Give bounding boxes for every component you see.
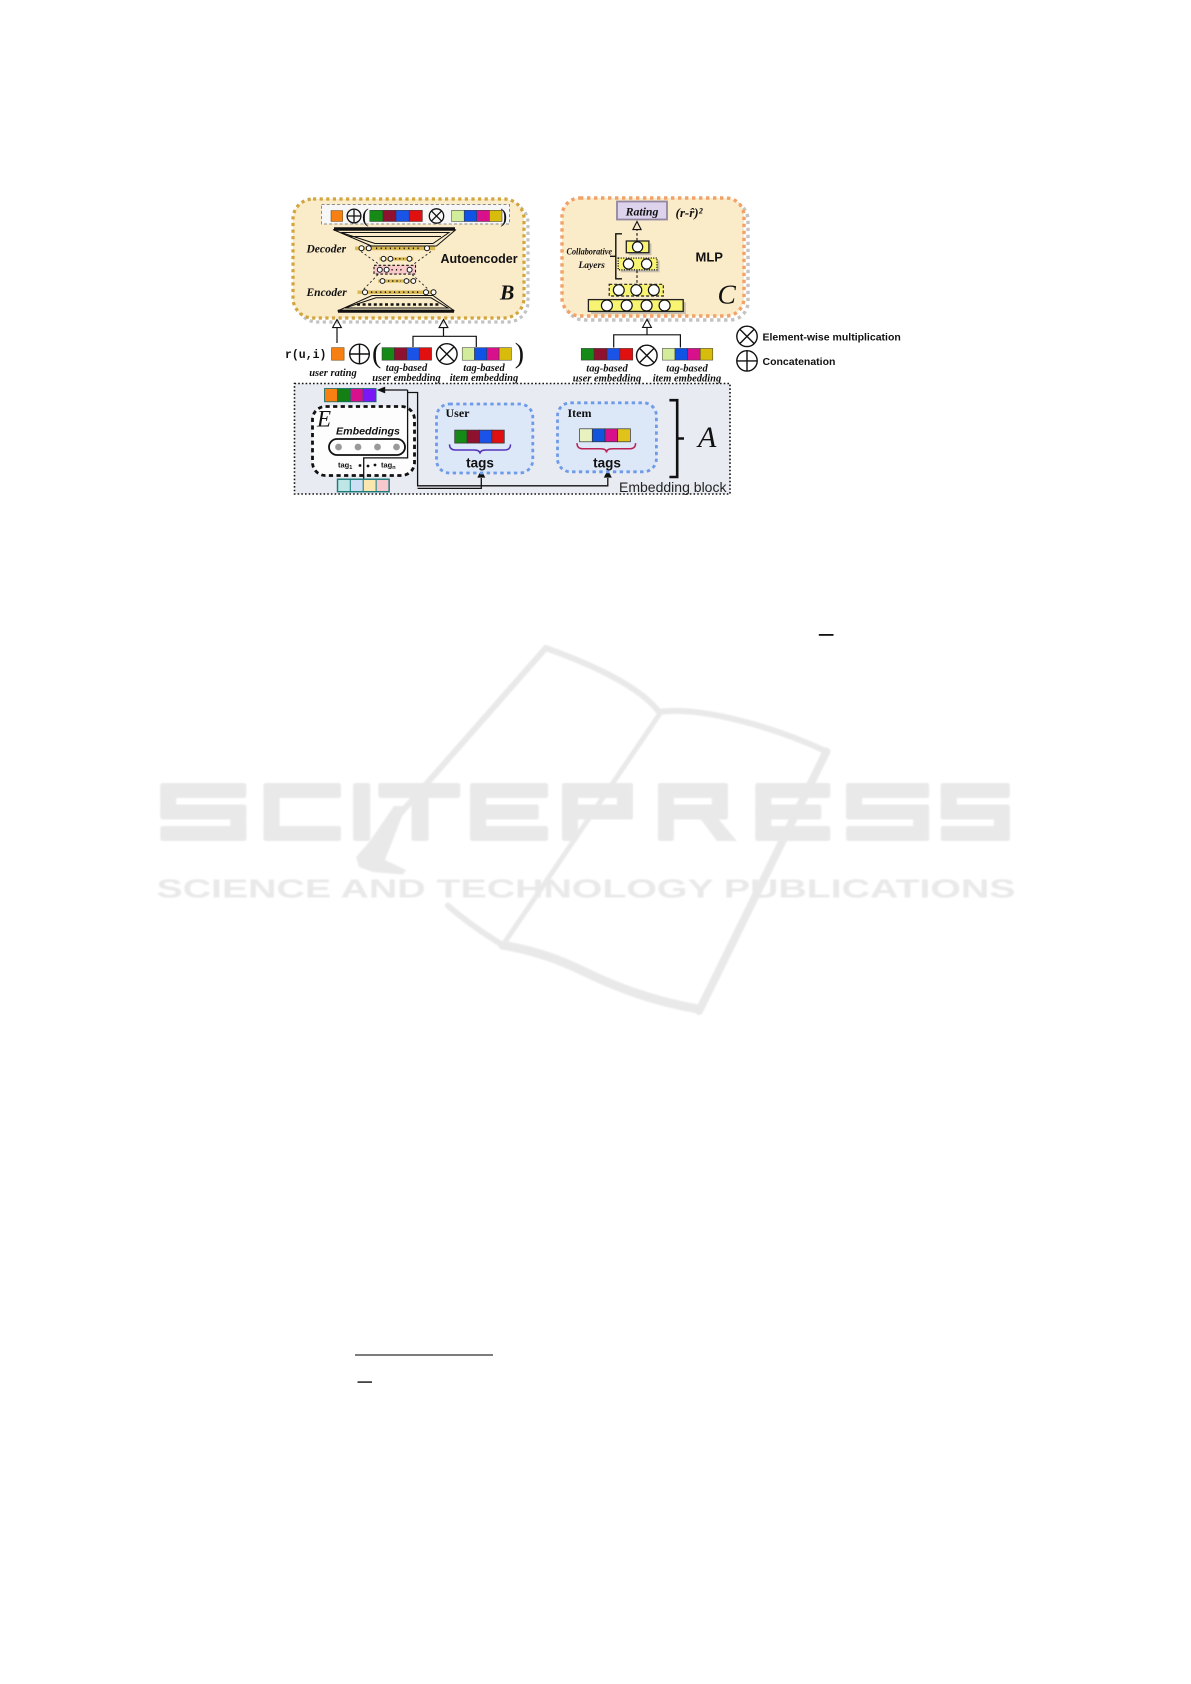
svg-text:Embedding block: Embedding block: [619, 480, 727, 495]
svg-text:C: C: [718, 279, 737, 310]
svg-text:A: A: [696, 421, 717, 454]
svg-text:): ): [500, 205, 507, 227]
svg-text:r(u,i): r(u,i): [285, 349, 326, 362]
svg-text:MLP: MLP: [696, 250, 724, 265]
svg-text:Rating: Rating: [625, 204, 659, 218]
svg-text:(: (: [372, 339, 381, 370]
svg-text:Embeddings: Embeddings: [336, 426, 400, 438]
svg-text:Layers: Layers: [578, 261, 606, 271]
svg-text:Element-wise multiplication: Element-wise multiplication: [763, 331, 901, 343]
svg-text:B: B: [499, 281, 514, 305]
svg-text:(: (: [362, 205, 369, 227]
svg-text:Encoder: Encoder: [306, 287, 348, 299]
svg-text:User: User: [446, 406, 471, 420]
svg-text:Autoencoder: Autoencoder: [441, 252, 518, 266]
svg-text:Collaborative: Collaborative: [567, 247, 613, 257]
svg-text:item embedding: item embedding: [450, 373, 519, 384]
svg-text:Concatenation: Concatenation: [763, 356, 836, 368]
svg-text:): ): [515, 339, 524, 370]
svg-text:user embedding: user embedding: [573, 374, 642, 385]
svg-text:Item: Item: [568, 406, 592, 420]
svg-text:(r-r̂)²: (r-r̂)²: [676, 205, 704, 220]
svg-text:user rating: user rating: [309, 368, 357, 379]
svg-text:tags: tags: [466, 456, 494, 471]
svg-text:Decoder: Decoder: [306, 244, 347, 256]
svg-text:E: E: [316, 407, 331, 432]
svg-text:user embedding: user embedding: [372, 373, 441, 384]
svg-text:SCIENCE AND TECHNOLOGY PUBLICA: SCIENCE AND TECHNOLOGY PUBLICATIONS: [157, 876, 1016, 904]
svg-text:tags: tags: [593, 456, 621, 471]
